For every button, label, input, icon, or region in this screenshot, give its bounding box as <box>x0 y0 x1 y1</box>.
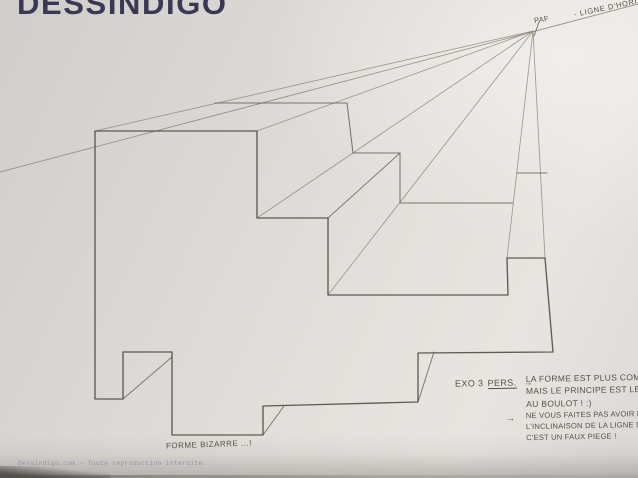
construction-rays <box>95 31 545 295</box>
receding-edge <box>263 406 284 435</box>
front-face-outline <box>95 131 553 435</box>
construction-ray <box>257 31 533 218</box>
receding-edges <box>123 153 434 435</box>
front-face <box>95 131 553 435</box>
photographed-exercise-sheet: DESSINDIGO PAF - LIGNE D'HORIZON FORME B… <box>0 0 638 478</box>
note-line: C'EST UN FAUX PIEGE ! <box>526 430 638 443</box>
note-block-main: LA FORME EST PLUS COM MAIS LE PRINCIPE E… <box>526 371 638 410</box>
exercise-title: EXO 3PERS.→ <box>455 377 533 388</box>
horizon-line <box>0 4 638 172</box>
receding-edge <box>123 357 172 399</box>
exercise-number: EXO 3 <box>455 378 484 388</box>
back-edge <box>215 103 513 203</box>
back-edges <box>215 103 547 203</box>
note-block-warning: NE VOUS FAITES PAS AVOIR PA L'INCLINAISO… <box>526 408 638 444</box>
construction-ray <box>257 31 533 131</box>
dessindigo-logo: DESSINDIGO <box>17 0 228 22</box>
note-line: MAIS LE PRINCIPE EST LE <box>526 383 638 397</box>
arrow-icon: → <box>506 413 515 423</box>
construction-ray <box>507 31 533 258</box>
construction-ray <box>533 31 545 258</box>
horizon-line <box>0 4 638 172</box>
receding-edge <box>418 352 434 402</box>
exercise-topic: PERS. <box>487 378 516 390</box>
